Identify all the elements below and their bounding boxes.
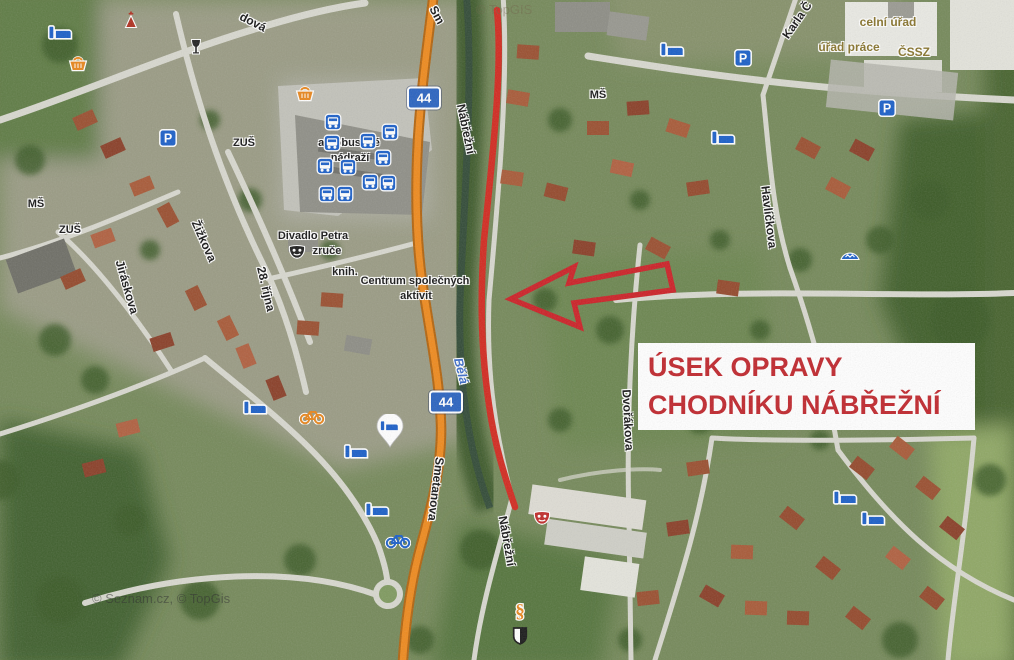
bike-blue-icon	[385, 532, 411, 549]
annotation-line2: CHODNÍKU NÁBŘEŽNÍ	[648, 386, 975, 424]
bed-icon	[711, 130, 736, 147]
bus-icon	[360, 133, 377, 150]
parking-icon: P	[734, 49, 752, 67]
mask-red-icon	[533, 510, 552, 526]
poi-label: ZUŠ	[59, 224, 81, 236]
bus-icon	[362, 174, 379, 191]
topgis-watermark: © TopGIS	[476, 2, 532, 17]
route-44-shield: 44	[407, 87, 441, 110]
poi-label: zruče	[313, 245, 342, 257]
poi-label: Divadlo Petra	[278, 230, 348, 242]
viewpoint-icon	[839, 248, 861, 261]
street-label: Bělá	[451, 356, 471, 385]
street-label: dová	[237, 9, 268, 34]
street-label: Jiráskova	[113, 258, 142, 315]
poi-label: knih.	[332, 266, 358, 278]
street-label: Dvořákova	[619, 389, 636, 451]
street-label: Žižkova	[189, 218, 220, 264]
parking-icon: P	[159, 129, 177, 147]
bus-icon	[337, 186, 354, 203]
bed-icon	[48, 25, 73, 42]
bed-icon	[243, 400, 268, 417]
bus-icon	[317, 158, 334, 175]
bed-icon	[833, 490, 858, 507]
paragraph-icon: §	[511, 600, 529, 622]
chapel-icon	[124, 11, 139, 30]
pub-icon	[189, 38, 204, 56]
street-label: 28. října	[254, 265, 278, 312]
poi-label: aktivit	[400, 290, 432, 302]
street-label: Nábřežní	[496, 515, 519, 567]
svg-text:P: P	[883, 102, 891, 116]
poi-label: ZUŠ	[233, 137, 255, 149]
poi-label: ČSSZ	[898, 45, 930, 59]
street-label: Havlíčkova	[758, 185, 780, 249]
map-labels-layer: dováSmNábřežníKarla ČHavlíčkovaŽižkovaJi…	[0, 0, 1014, 660]
bus-icon	[380, 175, 397, 192]
repair-annotation-box: ÚSEK OPRAVY CHODNÍKU NÁBŘEŽNÍ	[638, 343, 975, 430]
map-image: dováSmNábřežníKarla ČHavlíčkovaŽižkovaJi…	[0, 0, 1014, 660]
shield-bw-icon	[512, 626, 529, 646]
route-44-shield: 44	[429, 391, 463, 414]
mask-black-icon	[288, 244, 307, 260]
street-label: Smetanova	[425, 456, 447, 521]
poi-label: MŠ	[590, 89, 607, 101]
bed-icon	[344, 444, 369, 461]
street-label: Karla Č	[779, 0, 815, 41]
bus-icon	[382, 124, 399, 141]
bus-icon	[340, 159, 357, 176]
bed-icon	[660, 42, 685, 59]
annotation-line1: ÚSEK OPRAVY	[648, 348, 975, 386]
bus-icon	[375, 150, 392, 167]
bike-orange-icon	[299, 408, 325, 425]
street-label: Nábřežní	[454, 103, 478, 155]
map-copyright: © Seznam.cz, © TopGis	[92, 591, 230, 606]
bus-icon	[325, 114, 342, 131]
svg-text:P: P	[739, 52, 747, 66]
bus-icon	[319, 186, 336, 203]
parking-icon: P	[878, 99, 896, 117]
bed-icon	[365, 502, 390, 519]
poi-label: Centrum společných	[361, 275, 470, 287]
bed-icon	[861, 511, 886, 528]
bed-pin-icon	[375, 414, 405, 448]
basket-icon	[294, 83, 316, 103]
svg-text:P: P	[164, 132, 172, 146]
svg-text:§: §	[515, 601, 525, 622]
poi-label: úřad práce	[818, 40, 879, 54]
street-label: Sm	[426, 3, 447, 26]
poi-label: celní úřad	[860, 15, 917, 29]
bus-icon	[324, 135, 341, 152]
basket-icon	[67, 53, 89, 73]
poi-label: MŠ	[28, 198, 45, 210]
